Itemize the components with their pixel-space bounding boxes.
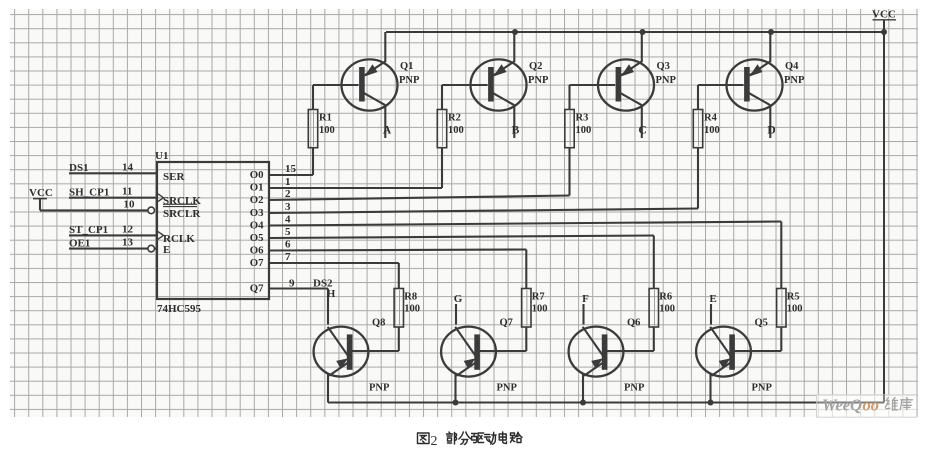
svg-text:VCC: VCC [29, 187, 53, 199]
svg-text:H: H [327, 288, 336, 300]
svg-text:PNP: PNP [497, 383, 518, 394]
svg-text:Q3: Q3 [657, 61, 670, 72]
svg-text:100: 100 [448, 125, 464, 136]
svg-text:B: B [512, 125, 520, 137]
svg-text:6: 6 [285, 239, 291, 251]
svg-text:R6: R6 [659, 292, 672, 303]
svg-text:Q4: Q4 [785, 61, 799, 72]
svg-text:3: 3 [285, 201, 291, 213]
svg-text:PNP: PNP [624, 383, 645, 394]
svg-text:O0: O0 [250, 169, 264, 181]
svg-text:C: C [638, 125, 646, 137]
svg-text:14: 14 [122, 162, 134, 174]
svg-text:F: F [582, 293, 589, 305]
svg-text:PNP: PNP [752, 383, 773, 394]
svg-text:12: 12 [122, 224, 134, 236]
svg-text:Q2: Q2 [529, 61, 542, 72]
svg-text:100: 100 [319, 125, 335, 136]
svg-text:PNP: PNP [784, 75, 805, 86]
svg-text:9: 9 [289, 278, 295, 290]
svg-text:O3: O3 [250, 207, 264, 219]
svg-text:OE1: OE1 [69, 238, 90, 250]
svg-text:4: 4 [285, 214, 291, 226]
svg-text:O2: O2 [250, 194, 264, 206]
svg-text:74HC595: 74HC595 [157, 303, 202, 315]
svg-text:100: 100 [659, 304, 675, 315]
svg-text:R5: R5 [787, 292, 800, 303]
svg-text:100: 100 [704, 125, 720, 136]
svg-text:O1: O1 [250, 182, 264, 194]
svg-text:Q7: Q7 [500, 318, 513, 329]
svg-text:100: 100 [404, 304, 420, 315]
svg-text:Q5: Q5 [755, 318, 768, 329]
svg-text:SRCLR: SRCLR [163, 208, 201, 220]
svg-text:R8: R8 [404, 292, 417, 303]
svg-text:2: 2 [285, 188, 291, 200]
svg-text:13: 13 [122, 237, 134, 249]
svg-text:E: E [163, 244, 170, 256]
svg-text:5: 5 [285, 226, 291, 238]
svg-text:A: A [383, 125, 392, 137]
svg-text:O4: O4 [250, 219, 264, 231]
svg-text:VCC: VCC [872, 9, 896, 21]
svg-text:100: 100 [576, 125, 592, 136]
svg-text:Q8: Q8 [372, 318, 385, 329]
svg-text:Q1: Q1 [400, 61, 413, 72]
svg-text:SRCLK: SRCLK [163, 195, 201, 207]
svg-text:PNP: PNP [656, 75, 677, 86]
svg-text:Q7: Q7 [250, 283, 264, 295]
svg-text:SH_CP1: SH_CP1 [69, 186, 109, 198]
svg-text:oo: oo [863, 396, 880, 415]
svg-text:O7: O7 [250, 257, 264, 269]
svg-text:R1: R1 [319, 113, 332, 124]
svg-text:PNP: PNP [528, 75, 549, 86]
svg-text:10: 10 [124, 199, 136, 211]
svg-text:100: 100 [787, 304, 803, 315]
svg-text:11: 11 [122, 186, 132, 198]
svg-text:PNP: PNP [369, 383, 390, 394]
svg-text:U1: U1 [155, 150, 168, 162]
svg-text:7: 7 [285, 251, 291, 263]
svg-text:R3: R3 [576, 113, 589, 124]
svg-text:100: 100 [532, 304, 548, 315]
svg-text:1: 1 [285, 176, 291, 188]
svg-text:R2: R2 [448, 113, 461, 124]
svg-text:DS1: DS1 [69, 162, 89, 174]
svg-text:G: G [454, 293, 463, 305]
svg-text:SER: SER [163, 171, 185, 183]
svg-text:WeeQ: WeeQ [822, 396, 862, 415]
svg-text:R7: R7 [532, 292, 545, 303]
svg-text:R4: R4 [704, 113, 718, 124]
svg-text:O6: O6 [250, 245, 264, 257]
svg-text:PNP: PNP [399, 75, 420, 86]
svg-text:ST_CP1: ST_CP1 [69, 224, 108, 236]
svg-text:2: 2 [431, 434, 438, 449]
svg-text:O5: O5 [250, 232, 264, 244]
svg-text:15: 15 [285, 163, 297, 175]
svg-text:Q6: Q6 [627, 318, 640, 329]
svg-text:D: D [767, 125, 775, 137]
svg-text:E: E [709, 293, 716, 305]
